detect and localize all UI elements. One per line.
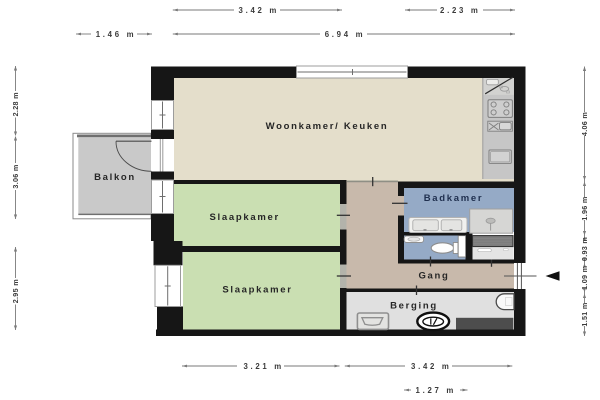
svg-text:Gang: Gang	[418, 271, 449, 282]
svg-text:0.93 m: 0.93 m	[580, 237, 589, 261]
svg-text:2.23 m: 2.23 m	[440, 6, 480, 15]
svg-text:2.95 m: 2.95 m	[11, 279, 20, 303]
svg-text:4.06 m: 4.06 m	[580, 112, 589, 136]
svg-text:Slaapkamer: Slaapkamer	[222, 284, 292, 295]
svg-text:Berging: Berging	[390, 300, 438, 311]
svg-text:Slaapkamer: Slaapkamer	[210, 212, 280, 223]
svg-text:3.42 m: 3.42 m	[411, 362, 451, 371]
svg-text:3.06 m: 3.06 m	[11, 164, 20, 188]
svg-text:1.96 m: 1.96 m	[580, 196, 589, 220]
svg-text:1.09 m: 1.09 m	[580, 266, 589, 290]
svg-text:3.42 m: 3.42 m	[239, 6, 279, 15]
svg-text:3.21 m: 3.21 m	[243, 362, 283, 371]
svg-text:Woonkamer/ Keuken: Woonkamer/ Keuken	[266, 121, 389, 132]
svg-text:2.28 m: 2.28 m	[11, 92, 20, 116]
svg-text:Badkamer: Badkamer	[424, 193, 484, 204]
svg-text:6.94 m: 6.94 m	[325, 30, 365, 39]
svg-text:1.46 m: 1.46 m	[96, 30, 136, 39]
svg-text:1.51 m: 1.51 m	[580, 302, 589, 326]
svg-text:Balkon: Balkon	[94, 172, 136, 183]
svg-text:1.27 m: 1.27 m	[416, 386, 456, 395]
